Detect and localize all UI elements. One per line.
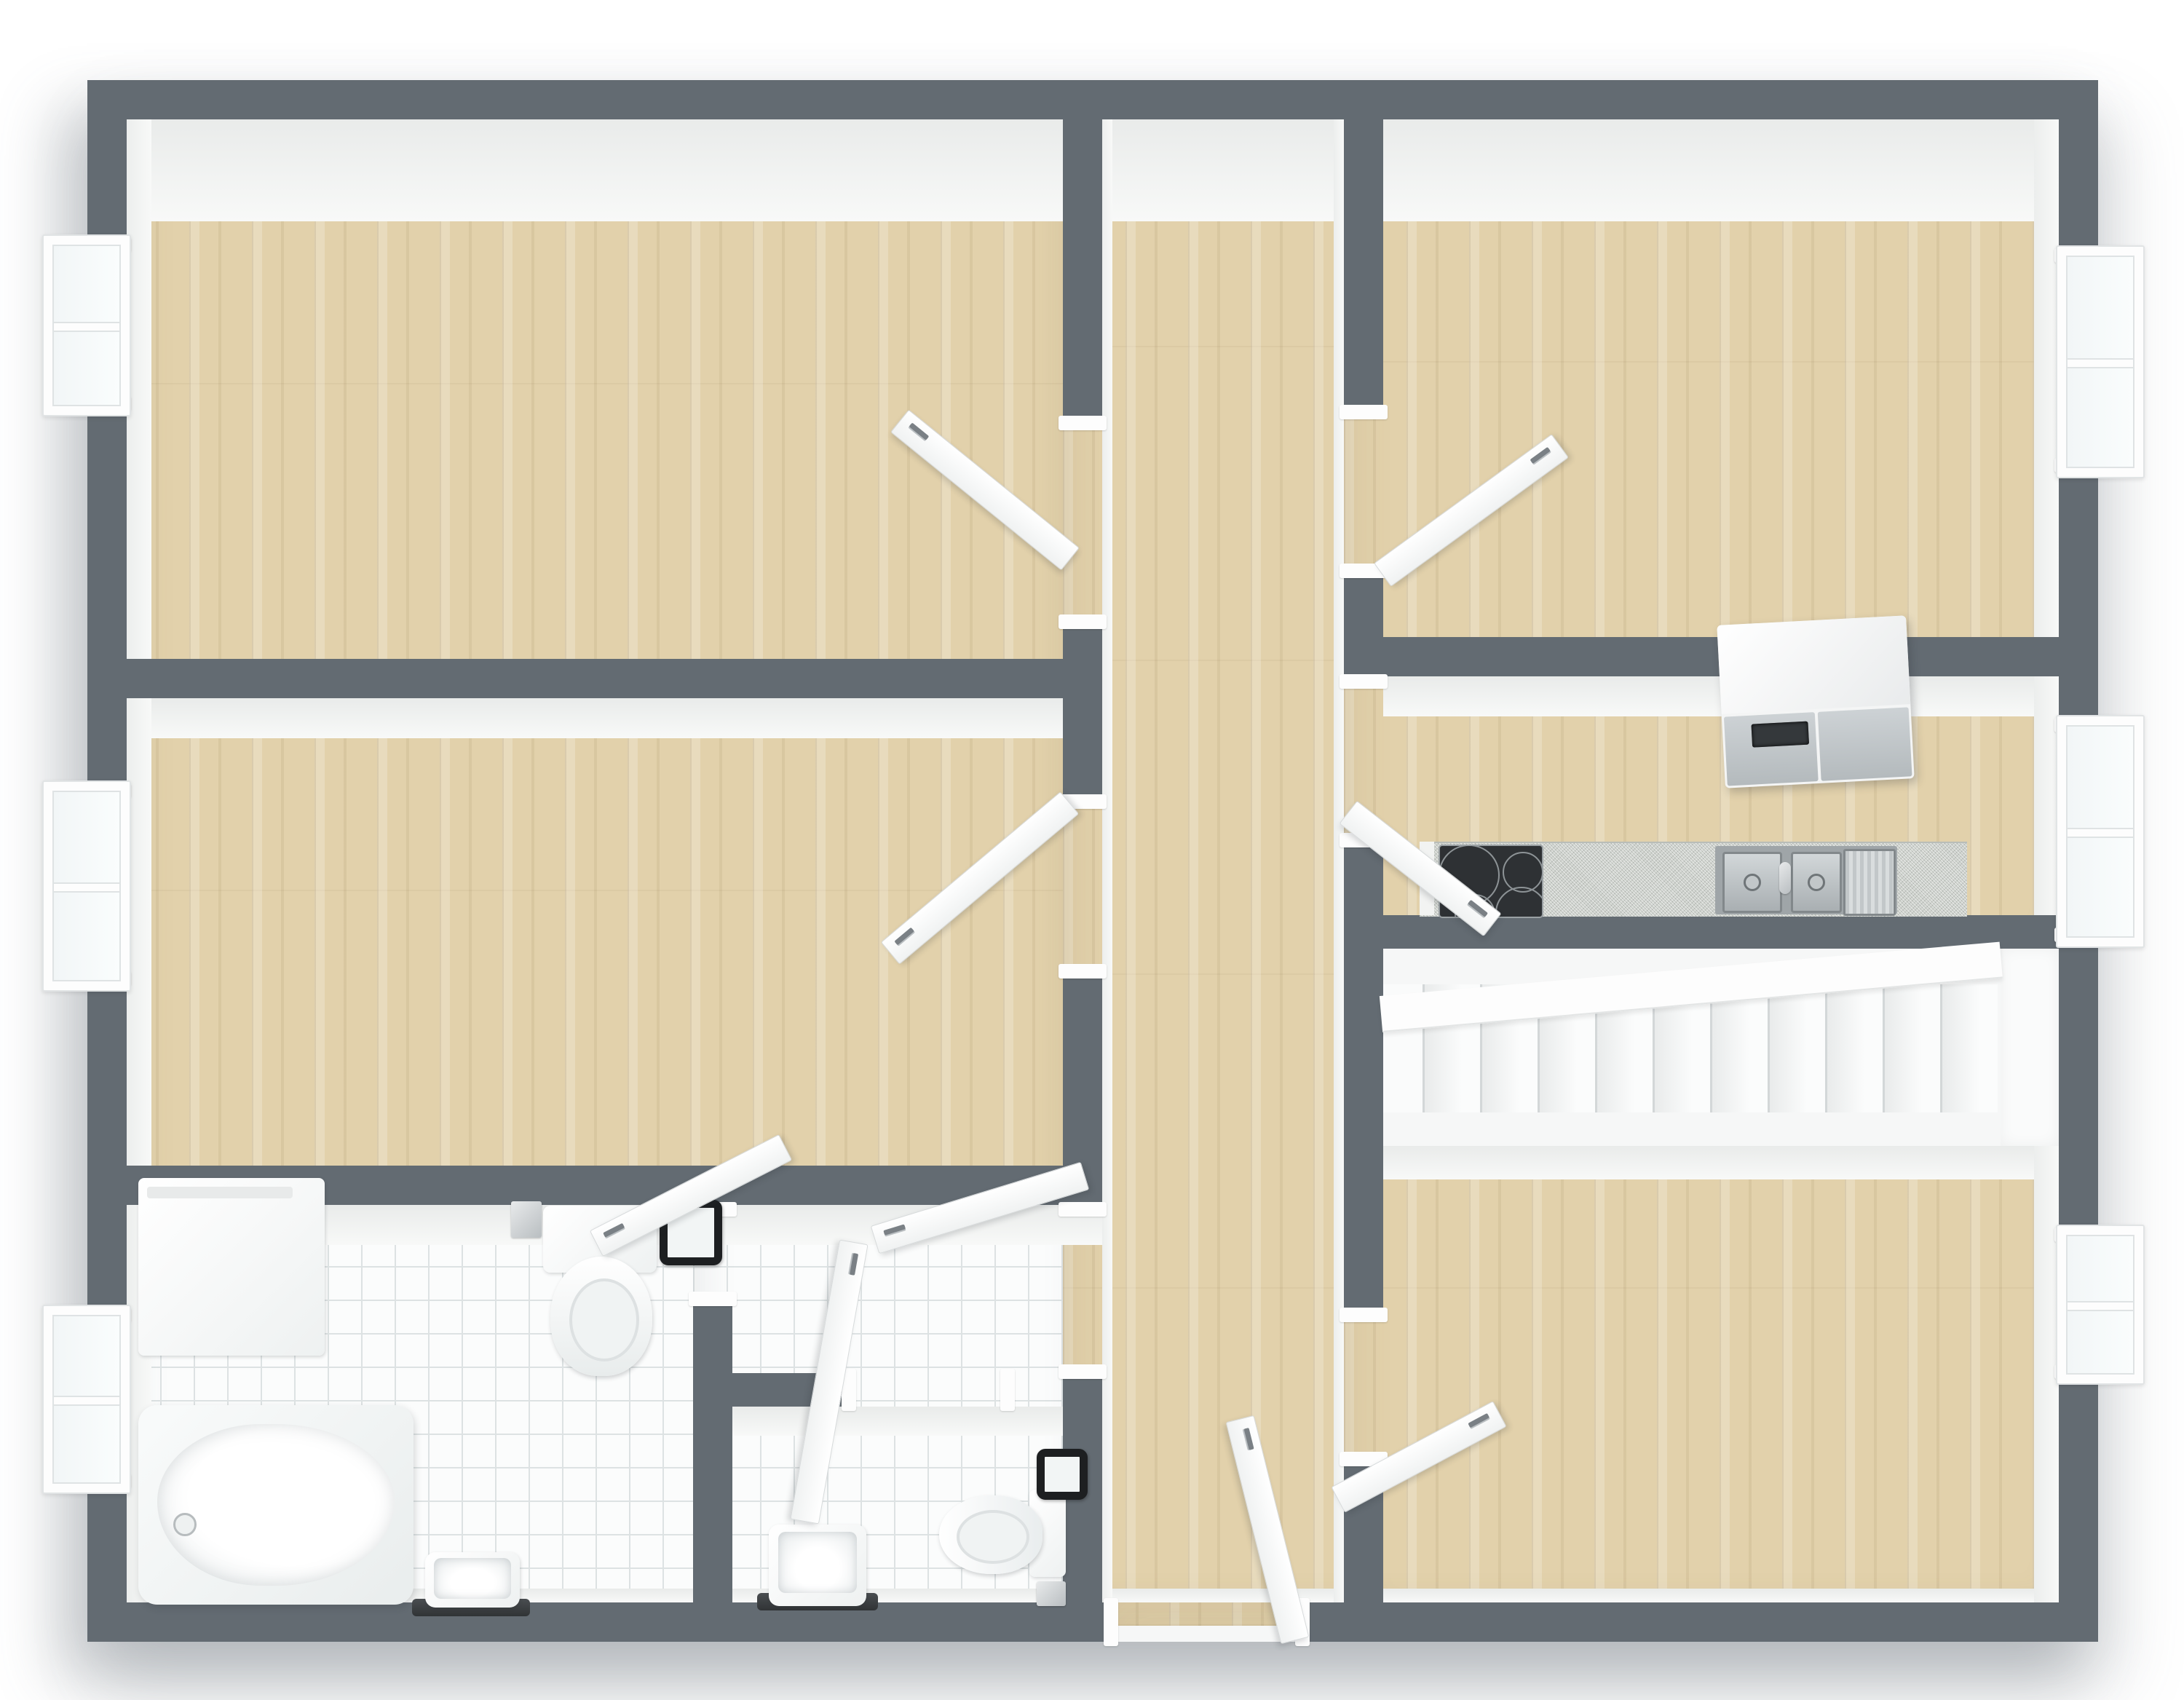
doorway-room-middle-left-jamb-b xyxy=(1059,964,1107,979)
face-wc-north xyxy=(693,1407,1063,1436)
front-door-handle xyxy=(1244,1428,1254,1450)
window-left-middle-glass xyxy=(52,791,121,981)
sink-drain-2 xyxy=(1808,874,1825,891)
window-left-top-glass xyxy=(52,245,121,406)
doorway-vestibule-jamb-a xyxy=(1059,1202,1107,1217)
doorway-room-top-right-jamb-a xyxy=(1340,405,1388,419)
fridge-display xyxy=(1751,721,1809,748)
stair-tread xyxy=(1768,984,1827,1112)
wall-top-outer xyxy=(87,80,2098,119)
window-right-top xyxy=(2056,245,2145,478)
fridge-top xyxy=(1721,620,1910,709)
window-left-bathroom-mullion xyxy=(54,1396,119,1406)
window-left-top-mullion xyxy=(54,322,119,332)
wall-bottom-outer-right xyxy=(1307,1602,2098,1642)
doorway-room-bottom-right-jamb-a xyxy=(1340,1308,1388,1322)
door-kitchen-handle xyxy=(1468,900,1488,917)
wall-divider-left-1 xyxy=(87,659,1102,698)
window-right-top-mullion xyxy=(2068,358,2133,368)
stair-landing xyxy=(2001,949,2059,1146)
wc-toilet-seat xyxy=(957,1510,1029,1564)
window-left-bathroom xyxy=(42,1305,131,1494)
wall-hall-west-2 xyxy=(1063,626,1102,797)
face-room-divider-left-1 xyxy=(127,698,1102,738)
doorway-room-top-left-jamb-a xyxy=(1059,416,1107,430)
wc-sink xyxy=(769,1525,866,1606)
face-hall-right xyxy=(1334,119,1344,1602)
stair-tread xyxy=(1710,984,1770,1112)
door-room-top-right-handle xyxy=(1530,447,1550,464)
wall-hall-west-1 xyxy=(1063,119,1102,419)
floorplan-render xyxy=(0,0,2184,1700)
wall-hall-east-3 xyxy=(1344,845,1383,1310)
window-right-kitchen-glass xyxy=(2066,725,2134,938)
window-left-top xyxy=(42,234,131,416)
wall-bath-wc-east xyxy=(693,1303,732,1602)
toilet-seat xyxy=(569,1278,639,1361)
bathroom-sink-basin xyxy=(434,1558,511,1599)
window-right-bottom-mullion xyxy=(2068,1301,2133,1311)
door-room-middle-left-handle xyxy=(894,928,914,946)
wall-hall-east-1 xyxy=(1344,119,1383,408)
doorway-room-top-left-jamb-b xyxy=(1059,614,1107,629)
door-vestibule-handle xyxy=(883,1224,906,1235)
window-left-middle xyxy=(42,780,131,992)
window-right-kitchen-mullion xyxy=(2068,828,2133,838)
window-right-kitchen xyxy=(2056,715,2145,948)
wall-hall-east-2 xyxy=(1344,575,1383,677)
sink-faucet xyxy=(1779,862,1791,894)
wc-wall-bin xyxy=(1037,1449,1088,1500)
toilet-paper-holder xyxy=(511,1201,542,1238)
window-right-bottom-glass xyxy=(2066,1235,2134,1375)
burner xyxy=(1495,887,1543,918)
wall-right-outer-2 xyxy=(2059,470,2098,721)
entrance-opening-jamb-a xyxy=(1104,1598,1118,1646)
doorway-bathroom-jamb-b xyxy=(689,1292,737,1306)
wall-left-outer-2 xyxy=(87,408,127,786)
fridge-door-right xyxy=(1818,707,1912,780)
washer-panel xyxy=(147,1187,293,1198)
wall-left-outer-3 xyxy=(87,983,127,1310)
washing-machine xyxy=(138,1178,325,1356)
sink-drain xyxy=(1744,874,1761,891)
bathtub xyxy=(138,1405,414,1605)
window-left-middle-mullion xyxy=(54,882,119,893)
face-right-inner xyxy=(2034,119,2059,1602)
sink-drainer xyxy=(1843,849,1896,916)
face-hall-left xyxy=(1102,119,1112,1602)
door-bathroom-handle xyxy=(603,1223,625,1238)
window-left-bathroom-glass xyxy=(52,1315,121,1484)
stair-tread xyxy=(1940,984,1998,1112)
wc-toilet-paper-holder xyxy=(1037,1581,1066,1606)
tub-drain xyxy=(173,1513,197,1536)
wall-bottom-outer-left xyxy=(87,1602,1107,1642)
door-room-top-left-handle xyxy=(909,422,930,440)
stair-tread xyxy=(1883,984,1942,1112)
doorway-vestibule-jamb-b xyxy=(1059,1364,1107,1379)
bathroom-sink xyxy=(425,1552,520,1608)
doorway-kitchen-jamb-a xyxy=(1340,674,1388,689)
door-wc-handle xyxy=(850,1253,858,1276)
face-room-br-north xyxy=(1383,1146,2059,1179)
stair-tread xyxy=(1825,984,1885,1112)
doorway-wc-jamb-b xyxy=(1000,1369,1015,1411)
floor-room-bottom-right xyxy=(1344,1112,2059,1602)
wc-sink-basin xyxy=(778,1532,857,1593)
door-room-bottom-right-handle xyxy=(1468,1413,1489,1428)
wall-right-outer-1 xyxy=(2059,80,2098,251)
wall-right-outer-3 xyxy=(2059,939,2098,1230)
wall-left-outer-1 xyxy=(87,80,127,240)
window-right-top-glass xyxy=(2066,256,2134,468)
bathtub-basin xyxy=(157,1424,395,1586)
window-right-bottom xyxy=(2056,1225,2145,1385)
floorplan xyxy=(0,0,2184,1700)
